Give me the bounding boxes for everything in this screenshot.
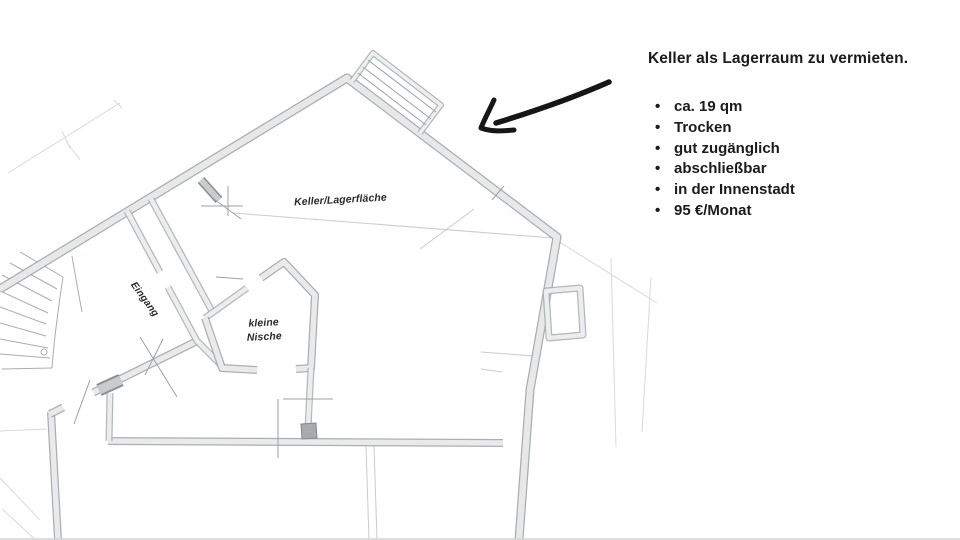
bullet-dry: Trocken	[655, 118, 795, 139]
staircase	[0, 252, 82, 369]
entrance-corridor-walls	[127, 199, 223, 367]
shaft-box	[546, 288, 583, 338]
bullet-size: ca. 19 qm	[655, 97, 795, 118]
bullet-price: 95 €/Monat	[655, 201, 795, 222]
hand-drawn-arrow-icon	[481, 82, 609, 131]
listing-image: Keller/Lagerfläche Eingang kleine Nische…	[0, 0, 960, 540]
listing-text-block: Keller als Lagerraum zu vermieten. ca. 1…	[648, 50, 948, 68]
construction-lines	[0, 100, 657, 540]
listing-title: Keller als Lagerraum zu vermieten.	[648, 50, 948, 68]
bullet-access: gut zugänglich	[655, 139, 795, 160]
niche-label: kleine Nische	[232, 315, 295, 345]
outer-walls	[0, 78, 557, 540]
floorplan-drawing	[0, 0, 960, 540]
listing-bullet-list: ca. 19 qm Trocken gut zugänglich abschli…	[655, 97, 795, 222]
bullet-location: in der Innenstadt	[655, 180, 795, 201]
bullet-lockable: abschließbar	[655, 159, 795, 180]
niche-walls	[205, 262, 317, 439]
